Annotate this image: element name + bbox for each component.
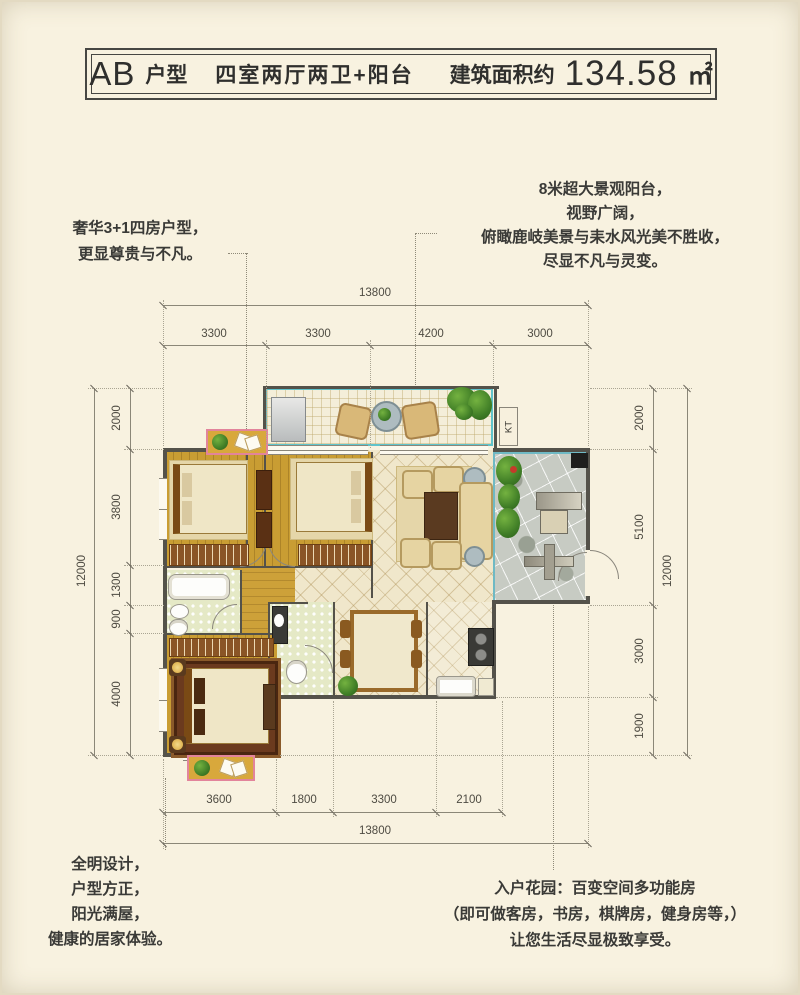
dim-line-top-segments	[163, 345, 588, 346]
area-unit: ㎡	[688, 56, 713, 92]
extension-line	[590, 449, 658, 450]
dim-label: 12000	[662, 555, 674, 587]
extension-line	[496, 697, 658, 698]
kitchen-counter	[478, 678, 494, 696]
bathtub	[168, 574, 230, 600]
dim-label: 900	[111, 609, 123, 628]
flower-box	[187, 755, 255, 781]
wardrobe	[298, 544, 372, 566]
dim-line-bottom-total	[163, 843, 588, 844]
garden-plants	[496, 508, 520, 538]
flower-box-plant	[194, 760, 210, 776]
annotation-line: 更显尊贵与不凡。	[40, 242, 240, 268]
dim-label: 2000	[634, 405, 646, 431]
extension-line	[436, 701, 437, 817]
kitchen-sink	[436, 676, 476, 697]
exercise-equipment	[540, 510, 568, 534]
window	[159, 478, 167, 540]
potted-plant	[378, 408, 391, 421]
area-label: 建筑面积约	[450, 59, 555, 89]
extension-line	[333, 701, 334, 817]
dim-label: 2000	[111, 405, 123, 431]
annotation-line: 健康的居家体验。	[30, 927, 190, 952]
armchair	[400, 538, 431, 568]
room-layout-label: 四室两厅两卫+阳台	[215, 59, 413, 89]
annotation-bottom-left: 全明设计， 户型方正， 阳光满屋， 健康的居家体验。	[30, 852, 190, 952]
wardrobe	[169, 638, 274, 657]
wall	[494, 386, 497, 452]
wall	[240, 570, 242, 635]
extension-line	[276, 759, 277, 817]
nightstand-lamp	[169, 736, 186, 753]
flower-box	[206, 429, 268, 455]
title-box: AB 户型 四室两厅两卫+阳台 建筑面积约 134.58 ㎡	[85, 48, 717, 100]
annotation-line: （即可做客房，书房，棋牌房，健身房等，）	[400, 902, 790, 928]
wall	[165, 566, 373, 568]
master-bed	[184, 668, 269, 744]
dim-label: 13800	[359, 825, 391, 837]
garden-plants	[496, 456, 522, 486]
dining-chair	[411, 620, 422, 638]
entry-door-swing	[590, 550, 619, 579]
dining-chair	[411, 650, 422, 668]
bathroom-sink	[170, 604, 189, 619]
extension-line	[163, 300, 164, 446]
extension-line	[280, 755, 692, 756]
annotation-line: 阳光满屋，	[30, 902, 190, 927]
title-inner-border: AB 户型 四室两厅两卫+阳台 建筑面积约 134.58 ㎡	[91, 54, 711, 94]
bedroom-bench	[263, 684, 276, 730]
dim-line-right-total	[687, 388, 688, 755]
dim-label: 4200	[418, 328, 444, 340]
annotation-line: 奢华3+1四房户型，	[40, 216, 240, 242]
dim-label: 3300	[371, 794, 397, 806]
ac-platform: KT	[499, 407, 518, 446]
structural-column	[571, 453, 588, 468]
balcony-chair	[400, 400, 440, 440]
extension-line	[588, 300, 589, 446]
area-value: 134.58	[565, 54, 678, 94]
extension-line	[88, 755, 163, 756]
leader-line	[246, 253, 247, 435]
annotation-line: 尽显不凡与灵变。	[430, 250, 780, 274]
unit-type-label: 户型	[145, 59, 187, 89]
bathroom-sink	[274, 614, 284, 627]
dim-label: 1800	[291, 794, 317, 806]
dim-label: 1300	[111, 572, 123, 598]
window	[159, 668, 167, 732]
dim-label: 1900	[634, 713, 646, 739]
dim-label: 3600	[206, 794, 232, 806]
window	[380, 445, 488, 455]
dim-label: 3000	[634, 638, 646, 664]
potted-plant	[338, 676, 358, 696]
bed	[296, 462, 372, 532]
extension-line	[590, 388, 692, 389]
leader-line	[553, 602, 554, 870]
dim-line-left-total	[94, 388, 95, 755]
dim-label: 5100	[634, 514, 646, 540]
dining-chair	[340, 620, 351, 638]
flower-box-deco	[244, 434, 262, 452]
wall	[268, 602, 308, 604]
armchair	[431, 541, 462, 570]
annotation-top-right: 8米超大景观阳台， 视野广阔， 俯瞰鹿岐美景与耒水风光美不胜收， 尽显不凡与灵变…	[430, 178, 780, 274]
annotation-bottom-right: 入户花园：百变空间多功能房 （即可做客房，书房，棋牌房，健身房等，） 让您生活尽…	[400, 876, 790, 954]
exercise-equipment	[544, 544, 555, 580]
side-table	[464, 546, 485, 567]
annotation-line: 户型方正，	[30, 877, 190, 902]
door-panel	[256, 470, 272, 510]
annotation-line: 俯瞰鹿岐美景与耒水风光美不胜收，	[430, 226, 780, 250]
coffee-table	[424, 492, 458, 540]
exercise-equipment	[536, 492, 582, 510]
washing-machine	[271, 397, 306, 442]
dim-line-left-segments	[130, 388, 131, 755]
dim-label: 2100	[456, 794, 482, 806]
annotation-line: 8米超大景观阳台，	[430, 178, 780, 202]
annotation-line: 入户花园：百变空间多功能房	[400, 876, 790, 902]
extension-line	[88, 388, 163, 389]
annotation-line: 视野广阔，	[430, 202, 780, 226]
annotation-line: 让您生活尽显极致享受。	[400, 928, 790, 954]
wall	[333, 602, 335, 697]
wall	[493, 448, 590, 452]
extension-line	[588, 606, 589, 848]
leader-line	[228, 253, 248, 254]
dining-table	[350, 610, 418, 692]
dim-label: 4000	[111, 681, 123, 707]
garden-plants	[498, 484, 520, 510]
extension-line	[163, 759, 164, 849]
nightstand-lamp	[169, 659, 186, 676]
extension-line	[590, 605, 658, 606]
wall	[426, 602, 428, 697]
toilet	[286, 660, 307, 684]
dim-label: 3000	[527, 328, 553, 340]
flower-box-plant	[212, 434, 228, 450]
door-panel	[256, 512, 272, 548]
toilet	[169, 619, 188, 636]
window	[268, 445, 368, 455]
extension-line	[370, 340, 371, 448]
dining-chair	[340, 650, 351, 668]
bed	[173, 464, 247, 534]
annotation-line: 全明设计，	[30, 852, 190, 877]
garden-flower	[510, 466, 517, 473]
dim-label: 3800	[111, 494, 123, 520]
unit-code: AB	[89, 55, 135, 93]
wardrobe	[169, 544, 249, 566]
extension-line	[266, 340, 267, 444]
balcony-plants	[455, 404, 473, 420]
dim-label: 12000	[76, 555, 88, 587]
annotation-top-left: 奢华3+1四房户型， 更显尊贵与不凡。	[40, 216, 240, 268]
dim-line-top-total	[163, 305, 588, 306]
wall	[495, 600, 590, 604]
dim-label: 3300	[201, 328, 227, 340]
dim-label: 13800	[359, 287, 391, 299]
dim-label: 3300	[305, 328, 331, 340]
extension-line	[502, 701, 503, 817]
stove	[468, 628, 494, 666]
leader-line	[415, 233, 437, 234]
flower-box-deco	[230, 760, 248, 778]
balcony-chair	[334, 402, 373, 441]
ac-label: KT	[504, 421, 515, 433]
